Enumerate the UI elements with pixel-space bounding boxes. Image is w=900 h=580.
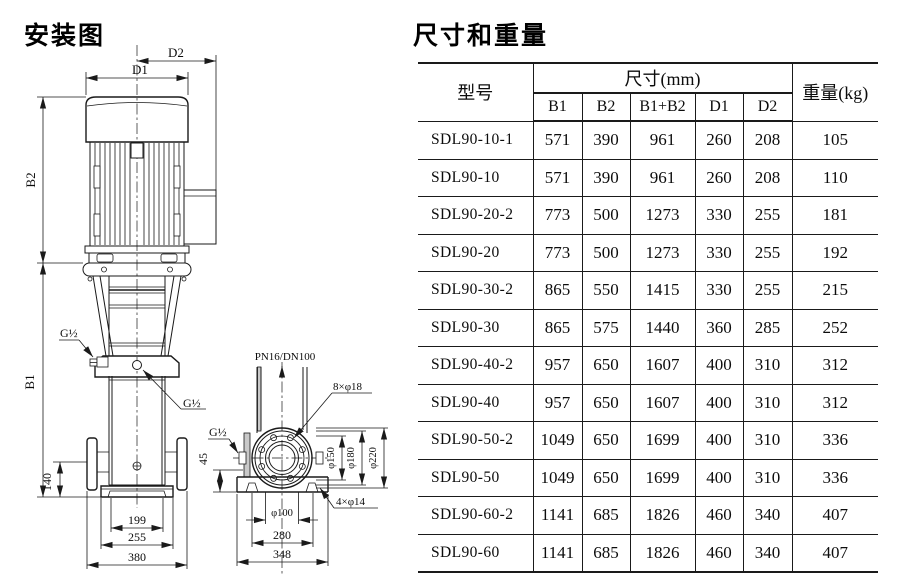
header-row-1: 型号 尺寸(mm) 重量(kg)	[418, 63, 878, 93]
dim-cell: 571	[533, 121, 582, 159]
weight-cell: 181	[792, 197, 878, 235]
label-199: 199	[128, 513, 146, 527]
label-bolt-base: 4×φ14	[336, 496, 366, 508]
dim-cell: 650	[582, 459, 630, 497]
label-flange-spec: PN16/DN100	[255, 351, 316, 363]
dim-cell: 1826	[630, 534, 695, 572]
callout-bolt-top: 8×φ18	[294, 381, 372, 438]
dim-cell: 961	[630, 159, 695, 197]
dim-cell: 400	[695, 459, 743, 497]
dim-cell: 340	[743, 497, 792, 535]
weight-cell: 336	[792, 422, 878, 460]
dim-cell: 208	[743, 159, 792, 197]
dim-cell: 773	[533, 197, 582, 235]
dim-cell: 390	[582, 159, 630, 197]
label-348: 348	[273, 547, 291, 561]
dim-140: 140	[40, 462, 87, 497]
header-model: 型号	[418, 63, 533, 121]
dim-cell: 571	[533, 159, 582, 197]
installation-diagram: D2 D1 B2 B1 140	[0, 0, 420, 580]
dim-cell: 1415	[630, 272, 695, 310]
table-row: SDL90-40-29576501607400310312	[418, 347, 878, 385]
label-phi180: φ180	[346, 447, 357, 469]
dim-cell: 310	[743, 422, 792, 460]
pump-side-view: PN16/DN100	[196, 351, 388, 575]
label-b2: B2	[23, 172, 38, 187]
weight-cell: 252	[792, 309, 878, 347]
table-row: SDL90-308655751440360285252	[418, 309, 878, 347]
header-d1: D1	[695, 93, 743, 121]
dim-cell: 360	[695, 309, 743, 347]
weight-cell: 215	[792, 272, 878, 310]
dim-cell: 1141	[533, 534, 582, 572]
dim-cell: 330	[695, 197, 743, 235]
weight-cell: 312	[792, 384, 878, 422]
dim-cell: 575	[582, 309, 630, 347]
label-255: 255	[128, 530, 146, 544]
dim-cell: 255	[743, 272, 792, 310]
dim-cell: 310	[743, 459, 792, 497]
model-cell: SDL90-30	[418, 309, 533, 347]
header-b1: B1	[533, 93, 582, 121]
model-cell: SDL90-20	[418, 234, 533, 272]
dim-cell: 1273	[630, 197, 695, 235]
header-d2: D2	[743, 93, 792, 121]
dim-cell: 650	[582, 347, 630, 385]
header-b2: B2	[582, 93, 630, 121]
dim-cell: 260	[695, 159, 743, 197]
dim-cell: 1699	[630, 459, 695, 497]
label-g-half-top: G½	[60, 326, 78, 340]
table-row: SDL90-6011416851826460340407	[418, 534, 878, 572]
table-row: SDL90-60-211416851826460340407	[418, 497, 878, 535]
dim-cell: 310	[743, 347, 792, 385]
table-row: SDL90-5010496501699400310336	[418, 459, 878, 497]
dim-cell: 255	[743, 234, 792, 272]
dim-cell: 285	[743, 309, 792, 347]
dim-cell: 1607	[630, 384, 695, 422]
label-g-half-side: G½	[209, 425, 227, 439]
label-phi220: φ220	[368, 447, 379, 469]
dim-cell: 255	[743, 197, 792, 235]
label-phi100: φ100	[271, 508, 293, 519]
callout-g-half-mid: G½	[143, 370, 206, 410]
weight-cell: 105	[792, 121, 878, 159]
callout-g-half-top: G½	[59, 326, 93, 357]
label-bolt-top: 8×φ18	[333, 381, 363, 393]
dim-cell: 1273	[630, 234, 695, 272]
pump-head	[90, 356, 179, 380]
dim-cell: 685	[582, 497, 630, 535]
label-45: 45	[196, 453, 210, 465]
header-dims-group: 尺寸(mm)	[533, 63, 792, 93]
weight-cell: 407	[792, 534, 878, 572]
dim-cell: 340	[743, 534, 792, 572]
model-cell: SDL90-20-2	[418, 197, 533, 235]
dim-cell: 310	[743, 384, 792, 422]
model-cell: SDL90-40-2	[418, 347, 533, 385]
model-cell: SDL90-50	[418, 459, 533, 497]
label-b1: B1	[22, 374, 37, 389]
dim-cell: 1699	[630, 422, 695, 460]
model-cell: SDL90-40	[418, 384, 533, 422]
dim-cell: 961	[630, 121, 695, 159]
dim-cell: 1141	[533, 497, 582, 535]
label-d2: D2	[168, 45, 184, 60]
dim-cell: 773	[533, 234, 582, 272]
dim-cell: 500	[582, 197, 630, 235]
suction-flange	[87, 438, 97, 490]
label-d1: D1	[132, 62, 148, 77]
discharge-flange	[177, 438, 187, 490]
dim-cell: 1826	[630, 497, 695, 535]
dim-cell: 957	[533, 384, 582, 422]
model-cell: SDL90-10	[418, 159, 533, 197]
junction-box	[184, 190, 216, 244]
g-half-boss-left	[239, 452, 246, 464]
dim-cell: 1607	[630, 347, 695, 385]
dimensions-table: 型号 尺寸(mm) 重量(kg) B1 B2 B1+B2 D1 D2 SDL90…	[418, 62, 878, 573]
dim-cell: 865	[533, 309, 582, 347]
table-row: SDL90-50-210496501699400310336	[418, 422, 878, 460]
dimensions-table-wrap: 型号 尺寸(mm) 重量(kg) B1 B2 B1+B2 D1 D2 SDL90…	[418, 62, 878, 573]
dim-cell: 650	[582, 422, 630, 460]
model-cell: SDL90-30-2	[418, 272, 533, 310]
weight-cell: 407	[792, 497, 878, 535]
table-row: SDL90-30-28655501415330255215	[418, 272, 878, 310]
table-row: SDL90-20-27735001273330255181	[418, 197, 878, 235]
dim-cell: 400	[695, 384, 743, 422]
model-cell: SDL90-50-2	[418, 422, 533, 460]
label-140: 140	[40, 473, 54, 491]
dim-cell: 500	[582, 234, 630, 272]
pump-barrel	[87, 376, 187, 490]
label-380: 380	[128, 550, 146, 564]
model-cell: SDL90-60	[418, 534, 533, 572]
dim-cell: 400	[695, 422, 743, 460]
weight-cell: 110	[792, 159, 878, 197]
dim-cell: 685	[582, 534, 630, 572]
dim-cell: 957	[533, 347, 582, 385]
table-row: SDL90-10-1571390961260208105	[418, 121, 878, 159]
dim-cell: 1440	[630, 309, 695, 347]
label-280: 280	[273, 528, 291, 542]
weight-cell: 312	[792, 347, 878, 385]
callout-g-half-side: G½	[208, 425, 238, 453]
header-b1b2: B1+B2	[630, 93, 695, 121]
dim-cell: 460	[695, 497, 743, 535]
dim-cell: 460	[695, 534, 743, 572]
g-half-boss-right	[316, 452, 323, 464]
dim-cell: 865	[533, 272, 582, 310]
weight-cell: 192	[792, 234, 878, 272]
header-weight: 重量(kg)	[792, 63, 878, 121]
label-phi150: φ150	[326, 447, 337, 469]
dim-b2: B2	[23, 97, 86, 263]
weight-cell: 336	[792, 459, 878, 497]
dim-cell: 1049	[533, 459, 582, 497]
table-row: SDL90-207735001273330255192	[418, 234, 878, 272]
model-cell: SDL90-60-2	[418, 497, 533, 535]
table-row: SDL90-409576501607400310312	[418, 384, 878, 422]
label-g-half-mid: G½	[183, 396, 201, 410]
dim-cell: 330	[695, 234, 743, 272]
pump-front-view: D2 D1 B2 B1 140	[22, 45, 216, 569]
table-row: SDL90-10571390961260208110	[418, 159, 878, 197]
dim-cell: 650	[582, 384, 630, 422]
dim-45: 45	[196, 453, 243, 492]
catalog-page: 安装图 尺寸和重量	[0, 0, 900, 580]
dim-cell: 390	[582, 121, 630, 159]
dim-cell: 1049	[533, 422, 582, 460]
dim-cell: 550	[582, 272, 630, 310]
dim-cell: 400	[695, 347, 743, 385]
table-title: 尺寸和重量	[413, 16, 548, 52]
dim-cell: 260	[695, 121, 743, 159]
dim-cell: 208	[743, 121, 792, 159]
dim-cell: 330	[695, 272, 743, 310]
model-cell: SDL90-10-1	[418, 121, 533, 159]
